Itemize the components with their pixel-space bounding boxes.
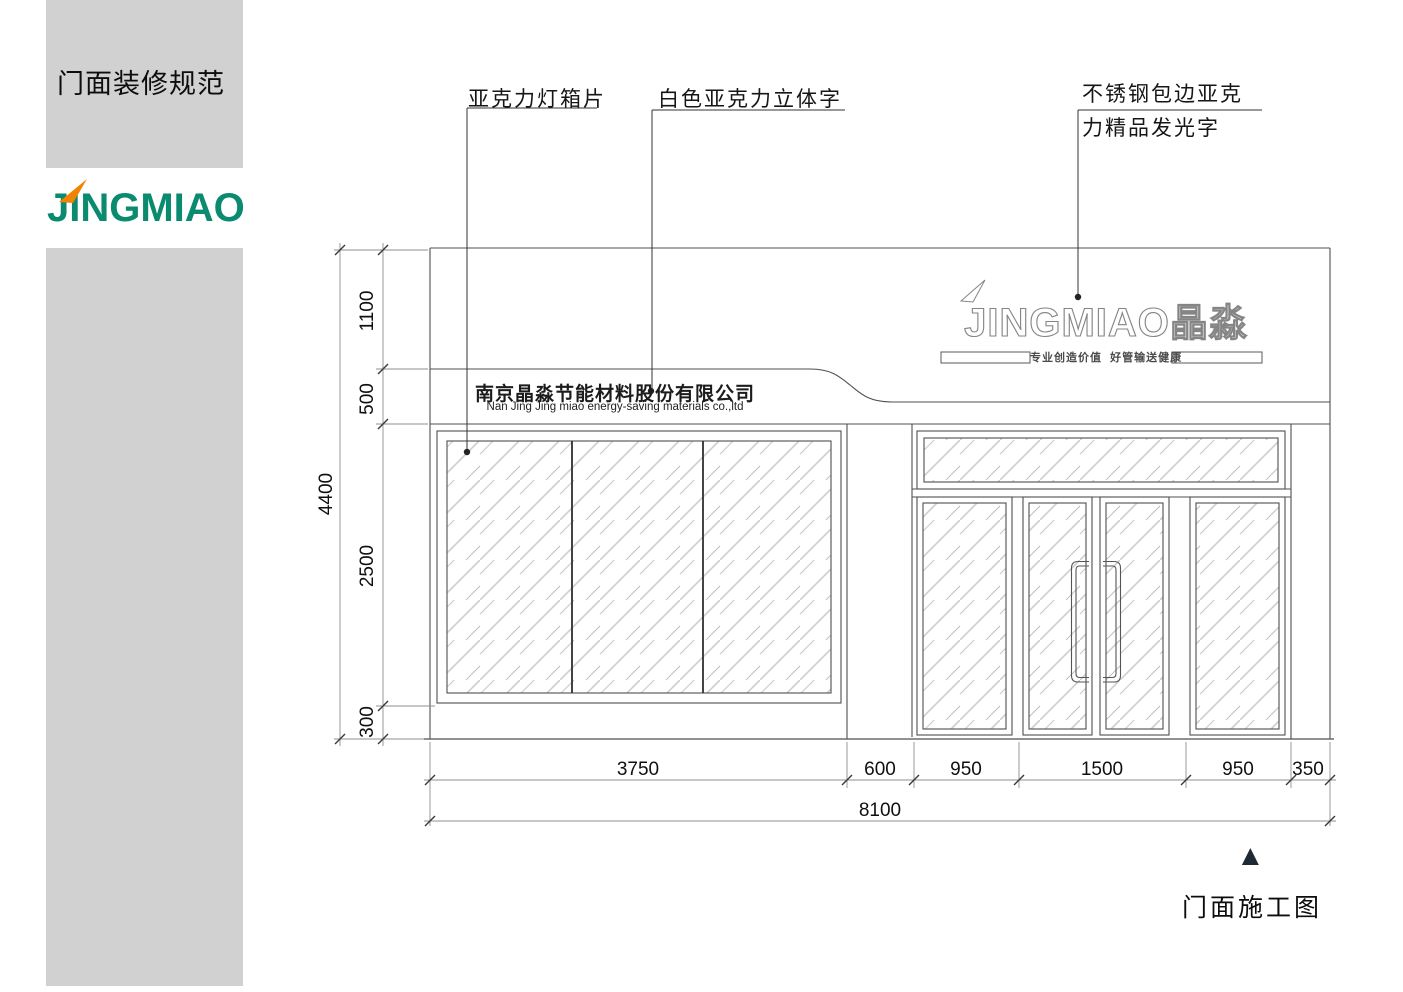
dim-2500: 2500	[357, 545, 379, 587]
fixed-glass-left	[917, 497, 1012, 735]
dim-950-left: 950	[950, 759, 982, 781]
dim-3750: 3750	[617, 759, 659, 781]
dim-1500: 1500	[1081, 759, 1123, 781]
callout-acrylic-letters: 白色亚克力立体字	[654, 83, 846, 113]
page: 门面装修规范 JINGMIAO	[0, 0, 1403, 992]
drawing-caption: 门面施工图	[1182, 888, 1322, 924]
dim-1100: 1100	[357, 291, 379, 332]
caption-triangle-icon: ▲	[1236, 842, 1265, 871]
dim-8100-total: 8100	[859, 800, 901, 822]
company-name-en: Nan Jing Jing miao energy-saving materia…	[430, 401, 800, 413]
showcase-window	[437, 431, 841, 703]
callout-steel-sign-line1: 不锈钢包边亚克	[1082, 78, 1243, 108]
facade-tagline: 专业创造价值 好管输送健康	[1030, 349, 1172, 365]
entrance-panels	[917, 497, 1285, 735]
transom-window	[912, 431, 1291, 497]
vertical-dimensions	[334, 243, 435, 746]
dim-500: 500	[357, 383, 379, 415]
facade-sign-latin: JINGMIAO	[964, 301, 1170, 345]
dim-300: 300	[357, 706, 379, 738]
dim-950-right: 950	[1222, 759, 1254, 781]
facade-sign: JINGMIAO晶淼	[938, 292, 1274, 347]
callout-steel-sign-line2: 力精品发光字	[1082, 112, 1220, 142]
dim-4400-total: 4400	[316, 473, 338, 515]
door-leaf-right	[1100, 497, 1169, 735]
callout-lightbox: 亚克力灯箱片	[468, 83, 600, 113]
door-leaf-left	[1023, 497, 1092, 735]
facade-sign-cn: 晶淼	[1170, 303, 1248, 345]
dim-600: 600	[864, 759, 896, 781]
storefront-elevation-drawing	[0, 0, 1403, 992]
fixed-glass-right	[1190, 497, 1285, 735]
dim-350: 350	[1292, 759, 1324, 781]
